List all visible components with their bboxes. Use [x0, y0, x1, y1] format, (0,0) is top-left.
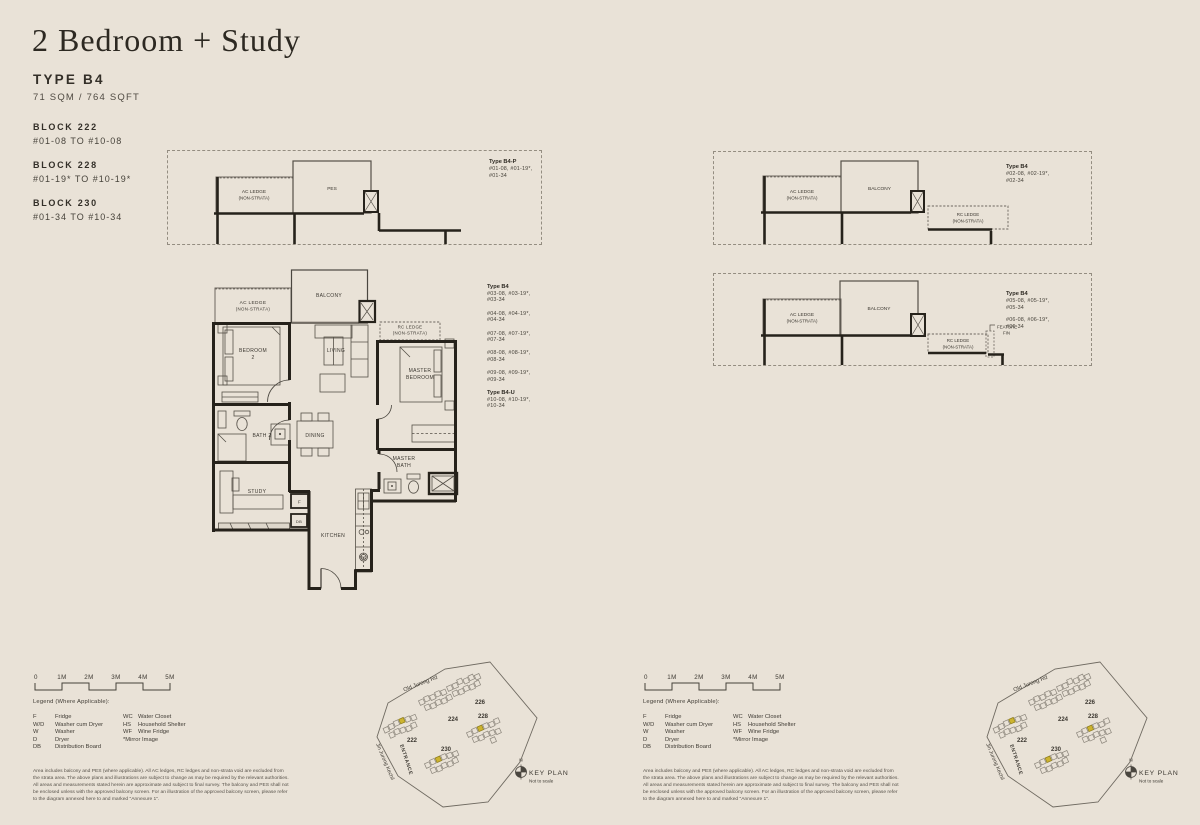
- legend-label: Household Shelter: [748, 722, 796, 728]
- room-label-dining: DINING: [305, 433, 324, 439]
- legend-abbr: F: [643, 714, 665, 720]
- legend-label: Fridge: [55, 714, 71, 720]
- legend-label: Dryer: [665, 737, 679, 743]
- room-label-master-bedroom: BEDROOM: [406, 375, 434, 381]
- room-label-bedroom2: BEDROOM: [239, 348, 267, 354]
- key-plan: [978, 648, 1200, 813]
- room-label-rc-ledge: RC LEDGE: [398, 325, 423, 330]
- legend-abbr: HS: [733, 722, 748, 728]
- block-name: BLOCK 222: [33, 122, 122, 132]
- room-label-balcony: BALCONY: [316, 293, 342, 299]
- unit-area-label: 71 SQM / 764 SQFT: [33, 92, 140, 103]
- panel-unit-line: #01-08, #01-19*,: [489, 166, 532, 173]
- block-info-228: BLOCK 228 #01-19* TO #10-19*: [33, 160, 131, 184]
- room-label-kitchen: KITCHEN: [321, 533, 345, 539]
- block-name: BLOCK 230: [33, 198, 122, 208]
- key-plan: [368, 648, 598, 813]
- scale-bar: [643, 671, 793, 697]
- page-title: 2 Bedroom + Study: [32, 22, 301, 59]
- panel-type-b4p: AC LEDGE (NON-STRATA) PES Type B4-P #01-…: [167, 150, 542, 245]
- panel-unit-title: Type B4: [1006, 291, 1049, 298]
- legend-label: Washer cum Dryer: [665, 722, 713, 728]
- block-range: #01-34 TO #10-34: [33, 212, 122, 222]
- panel-unit-title: Type B4-P: [489, 159, 532, 166]
- room-label-bath2: BATH 2: [253, 433, 272, 439]
- room-label-ac-ledge: AC LEDGE: [790, 312, 814, 318]
- unit-group-title: Type B4: [487, 284, 530, 291]
- scale-bar: [33, 671, 183, 697]
- panel-unit-line: #02-34: [1006, 178, 1049, 185]
- room-label-rc-ledge: RC LEDGE: [957, 212, 980, 217]
- panel-unit-list: Type B4 #05-08, #05-19*, #05-34 #06-08, …: [1006, 291, 1049, 330]
- legend-label: Water Closet: [748, 714, 781, 720]
- room-label-balcony: BALCONY: [868, 186, 892, 192]
- room-label-balcony: BALCONY: [868, 306, 892, 312]
- legend-block: Legend (Where Applicable): FFridge W/DWa…: [33, 699, 333, 803]
- panel-type-b4-02: AC LEDGE (NON-STRATA) BALCONY RC LEDGE (…: [713, 151, 1092, 245]
- panel-unit-line: #05-34: [1006, 305, 1049, 312]
- room-label-non-strata: (NON-STRATA): [239, 196, 270, 201]
- room-label-living: LIVING: [327, 348, 345, 354]
- unit-group-title: Type B4-U: [487, 390, 530, 397]
- legend-abbr: WF: [123, 729, 138, 735]
- main-floor-plan: AC LEDGE (NON-STRATA) BALCONY RC LEDGE (…: [205, 262, 485, 622]
- room-label-ac-ledge: AC LEDGE: [240, 300, 267, 306]
- panel-unit-list: Type B4-P #01-08, #01-19*, #01-34: [489, 159, 532, 179]
- legend-abbr: F: [33, 714, 55, 720]
- block-range: #01-08 TO #10-08: [33, 136, 122, 146]
- legend-label: Household Shelter: [138, 722, 186, 728]
- panel-unit-title: Type B4: [1006, 164, 1049, 171]
- fridge-label: F: [298, 500, 301, 505]
- legend-label: Water Closet: [138, 714, 171, 720]
- block-range: #01-19* TO #10-19*: [33, 174, 131, 184]
- plan-b4p: AC LEDGE (NON-STRATA) PES: [168, 151, 541, 244]
- legend-label: Washer cum Dryer: [55, 722, 103, 728]
- panel-type-b4-0506: AC LEDGE (NON-STRATA) BALCONY RC LEDGE (…: [713, 273, 1092, 366]
- room-label-master-bath: MASTER: [393, 456, 416, 462]
- legend-abbr: D: [643, 737, 665, 743]
- legend-abbr: WC: [733, 714, 748, 720]
- legend-abbr: WC: [123, 714, 138, 720]
- legend-label: Distribution Board: [665, 744, 711, 750]
- unit-line: #09-08, #09-19*,: [487, 370, 530, 376]
- room-label-non-strata: (NON-STRATA): [953, 219, 984, 224]
- panel-unit-line: #06-08, #06-19*,: [1006, 317, 1049, 324]
- wd-label: W/D: [360, 556, 367, 560]
- legend-label: Distribution Board: [55, 744, 101, 750]
- room-label-non-strata: (NON-STRATA): [236, 307, 271, 312]
- room-label-non-strata: (NON-STRATA): [787, 196, 818, 201]
- legend-label: Wine Fridge: [748, 729, 779, 735]
- unit-line: #04-34: [487, 317, 530, 323]
- panel-unit-line: #05-08, #05-19*,: [1006, 298, 1049, 305]
- panel-unit-line: #02-08, #02-19*,: [1006, 171, 1049, 178]
- disclaimer-text: Area includes balcony and PES (where app…: [33, 768, 333, 803]
- room-label-rc-ledge: RC LEDGE: [947, 338, 970, 343]
- unit-line: #07-34: [487, 337, 530, 343]
- legend-label: Dryer: [55, 737, 69, 743]
- legend-abbr: HS: [123, 722, 138, 728]
- block-name: BLOCK 228: [33, 160, 131, 170]
- room-label-non-strata: (NON-STRATA): [787, 319, 818, 324]
- legend-heading: Legend (Where Applicable):: [33, 699, 333, 705]
- room-label-study: STUDY: [248, 489, 267, 495]
- panel-unit-line: #06-34: [1006, 324, 1049, 331]
- unit-line: #10-34: [487, 403, 530, 409]
- legend-abbr: W: [33, 729, 55, 735]
- room-label-ac-ledge: AC LEDGE: [790, 189, 814, 195]
- feature-fin-label: FIN: [1003, 331, 1010, 336]
- room-label-master: MASTER: [409, 368, 432, 374]
- legend-label: Fridge: [665, 714, 681, 720]
- legend-abbr: W: [643, 729, 665, 735]
- room-label-non-strata: (NON-STRATA): [943, 345, 974, 350]
- legend-label: Wine Fridge: [138, 729, 169, 735]
- legend-abbr: W/D: [643, 722, 665, 728]
- legend-label: Washer: [55, 729, 75, 735]
- block-info-230: BLOCK 230 #01-34 TO #10-34: [33, 198, 122, 222]
- room-label-bedroom2-num: 2: [251, 355, 254, 361]
- unit-line: #09-34: [487, 377, 530, 383]
- legend-mirror-note: *Mirror Image: [123, 737, 158, 743]
- floorplan-brochure-page: 0 1M 2M 3M 4M 5M: [0, 0, 1200, 825]
- legend-heading: Legend (Where Applicable):: [643, 699, 943, 705]
- disclaimer-text: Area includes balcony and PES (where app…: [643, 768, 943, 803]
- legend-block: Legend (Where Applicable): FFridge W/DWa…: [643, 699, 943, 803]
- legend-abbr: DB: [33, 744, 55, 750]
- legend-abbr: W/D: [33, 722, 55, 728]
- room-label-master-bath2: BATH: [397, 463, 411, 469]
- room-label-non-strata: (NON-STRATA): [393, 331, 428, 336]
- legend-mirror-note: *Mirror Image: [733, 737, 768, 743]
- panel-unit-line: #01-34: [489, 173, 532, 180]
- room-label-ac-ledge: AC LEDGE: [242, 189, 266, 195]
- legend-abbr: D: [33, 737, 55, 743]
- room-label-pes: PES: [327, 186, 337, 192]
- main-unit-list: Type B4#03-08, #03-19*,#03-34 #04-08, #0…: [487, 284, 530, 417]
- unit-type-label: TYPE B4: [33, 72, 105, 87]
- panel-unit-list: Type B4 #02-08, #02-19*, #02-34: [1006, 164, 1049, 184]
- db-label: DB: [296, 519, 302, 524]
- unit-line: #03-34: [487, 297, 530, 303]
- legend-label: Washer: [665, 729, 685, 735]
- unit-line: #08-34: [487, 357, 530, 363]
- block-info-222: BLOCK 222 #01-08 TO #10-08: [33, 122, 122, 146]
- legend-abbr: WF: [733, 729, 748, 735]
- legend-abbr: DB: [643, 744, 665, 750]
- unit-line: #08-08, #08-19*,: [487, 350, 530, 356]
